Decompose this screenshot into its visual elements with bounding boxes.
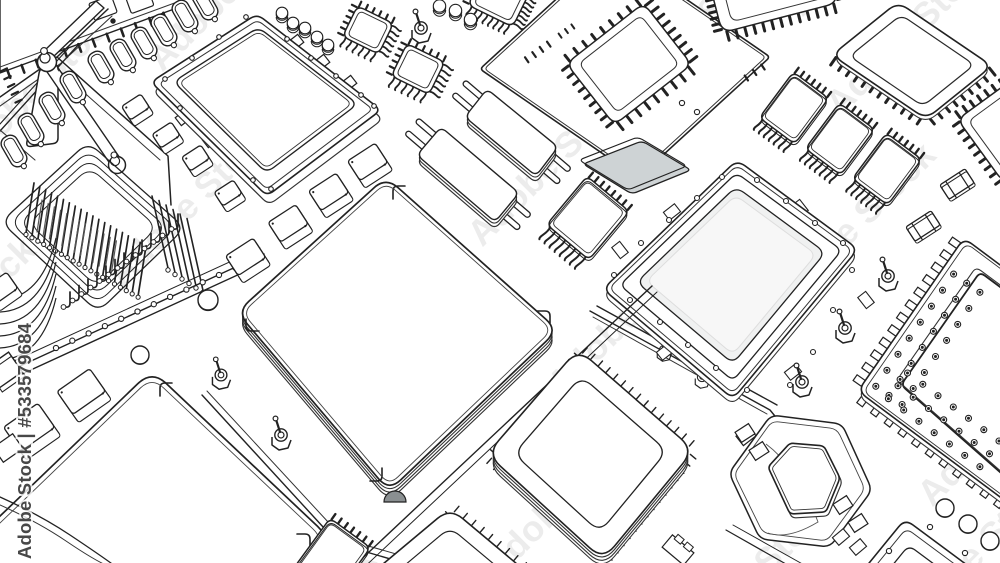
svg-text:Adobe Stock | #533579684: Adobe Stock | #533579684: [14, 322, 35, 559]
